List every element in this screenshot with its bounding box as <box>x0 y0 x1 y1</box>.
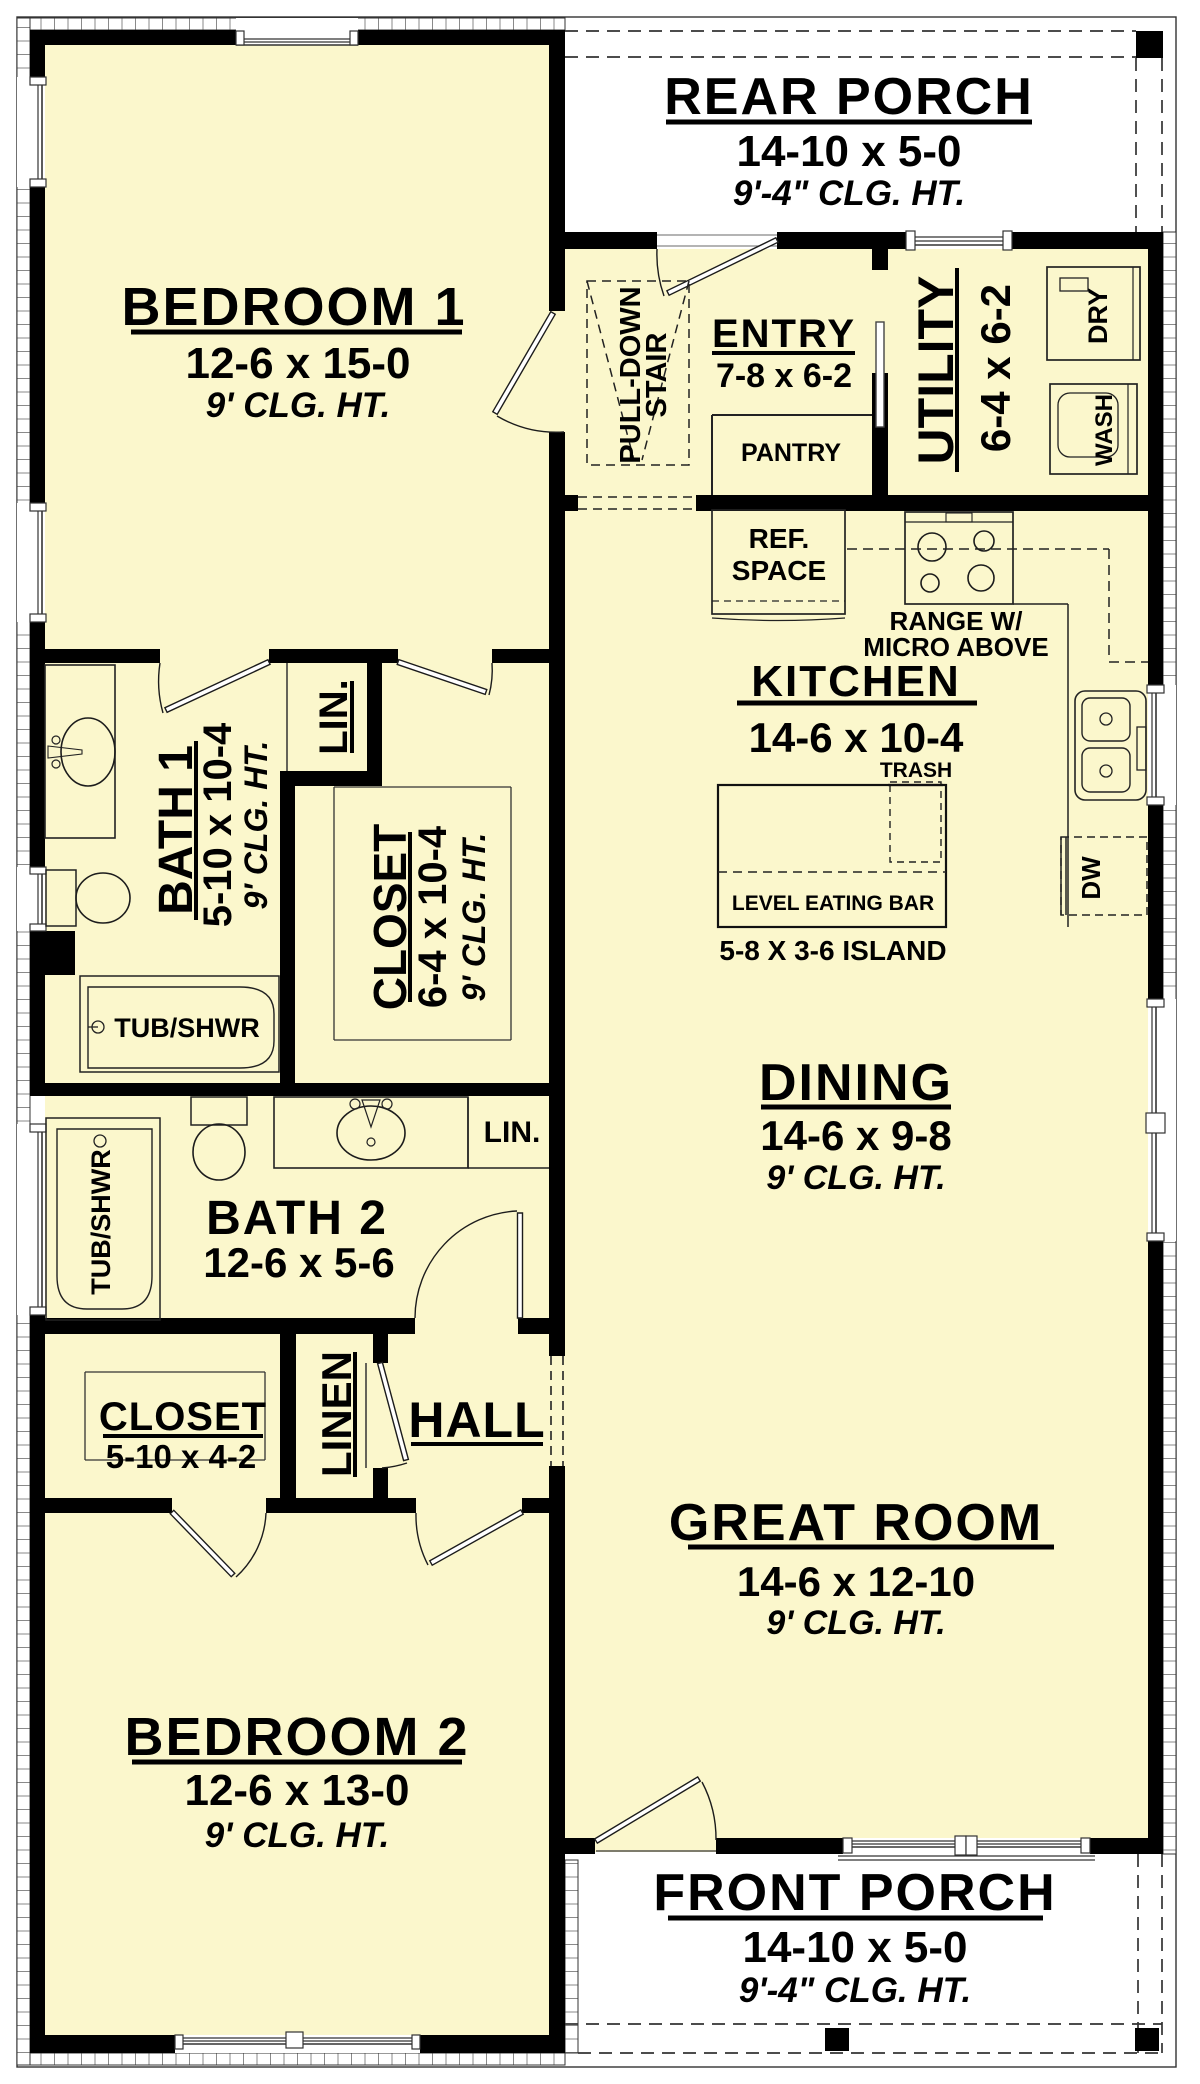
svg-text:9' CLG. HT.: 9' CLG. HT. <box>456 833 492 1002</box>
svg-text:REF.: REF. <box>749 523 810 554</box>
svg-text:14-10 x 5-0: 14-10 x 5-0 <box>736 127 961 176</box>
svg-text:5-8 X 3-6 ISLAND: 5-8 X 3-6 ISLAND <box>719 935 946 966</box>
svg-text:LIN.: LIN. <box>312 679 356 755</box>
svg-text:9' CLG. HT.: 9' CLG. HT. <box>238 741 274 910</box>
svg-text:LINEN: LINEN <box>313 1351 360 1477</box>
svg-text:12-6 x 15-0: 12-6 x 15-0 <box>185 339 410 388</box>
svg-text:6-4 x 6-2: 6-4 x 6-2 <box>972 284 1019 452</box>
svg-text:STAIR: STAIR <box>641 333 673 418</box>
svg-text:CLOSET: CLOSET <box>99 1395 267 1439</box>
svg-text:FRONT PORCH: FRONT PORCH <box>653 1864 1056 1922</box>
svg-text:DW: DW <box>1076 856 1106 900</box>
svg-text:14-6 x 12-10: 14-6 x 12-10 <box>737 1558 975 1605</box>
svg-text:14-6 x 9-8: 14-6 x 9-8 <box>760 1112 951 1159</box>
svg-text:LEVEL EATING BAR: LEVEL EATING BAR <box>732 892 934 915</box>
svg-text:6-4 x 10-4: 6-4 x 10-4 <box>411 825 455 1008</box>
svg-text:TUB/SHWR: TUB/SHWR <box>114 1013 259 1043</box>
svg-text:GREAT ROOM: GREAT ROOM <box>669 1494 1043 1552</box>
svg-text:DRY: DRY <box>1083 288 1113 344</box>
svg-text:9' CLG. HT.: 9' CLG. HT. <box>205 1816 390 1855</box>
svg-text:TRASH: TRASH <box>880 759 952 782</box>
svg-text:7-8 x 6-2: 7-8 x 6-2 <box>716 357 852 395</box>
svg-text:BATH 2: BATH 2 <box>206 1192 388 1245</box>
svg-text:12-6 x 5-6: 12-6 x 5-6 <box>203 1239 394 1286</box>
svg-text:KITCHEN: KITCHEN <box>751 657 961 706</box>
svg-text:HALL: HALL <box>408 1392 545 1448</box>
svg-text:5-10 x 4-2: 5-10 x 4-2 <box>106 1438 256 1475</box>
svg-text:SPACE: SPACE <box>732 555 826 586</box>
svg-text:9' CLG. HT.: 9' CLG. HT. <box>206 386 391 425</box>
svg-text:PANTRY: PANTRY <box>741 439 841 467</box>
svg-text:14-10 x 5-0: 14-10 x 5-0 <box>742 1923 967 1972</box>
svg-text:DINING: DINING <box>759 1054 953 1112</box>
svg-text:9' CLG. HT.: 9' CLG. HT. <box>766 1159 945 1197</box>
svg-text:ENTRY: ENTRY <box>712 312 856 356</box>
svg-text:REAR PORCH: REAR PORCH <box>664 68 1034 126</box>
svg-text:TUB/SHWR: TUB/SHWR <box>86 1149 116 1294</box>
svg-text:WASH: WASH <box>1091 394 1118 466</box>
svg-text:LIN.: LIN. <box>484 1116 541 1149</box>
svg-text:9'-4" CLG. HT.: 9'-4" CLG. HT. <box>733 174 965 213</box>
svg-text:BEDROOM 2: BEDROOM 2 <box>124 1707 469 1767</box>
svg-text:5-10 x 10-4: 5-10 x 10-4 <box>196 722 240 927</box>
svg-text:BEDROOM 1: BEDROOM 1 <box>121 277 466 337</box>
svg-text:12-6 x 13-0: 12-6 x 13-0 <box>184 1766 409 1815</box>
svg-text:14-6 x 10-4: 14-6 x 10-4 <box>749 714 964 761</box>
svg-text:9' CLG. HT.: 9' CLG. HT. <box>766 1604 945 1642</box>
svg-text:9'-4" CLG. HT.: 9'-4" CLG. HT. <box>739 1971 971 2010</box>
